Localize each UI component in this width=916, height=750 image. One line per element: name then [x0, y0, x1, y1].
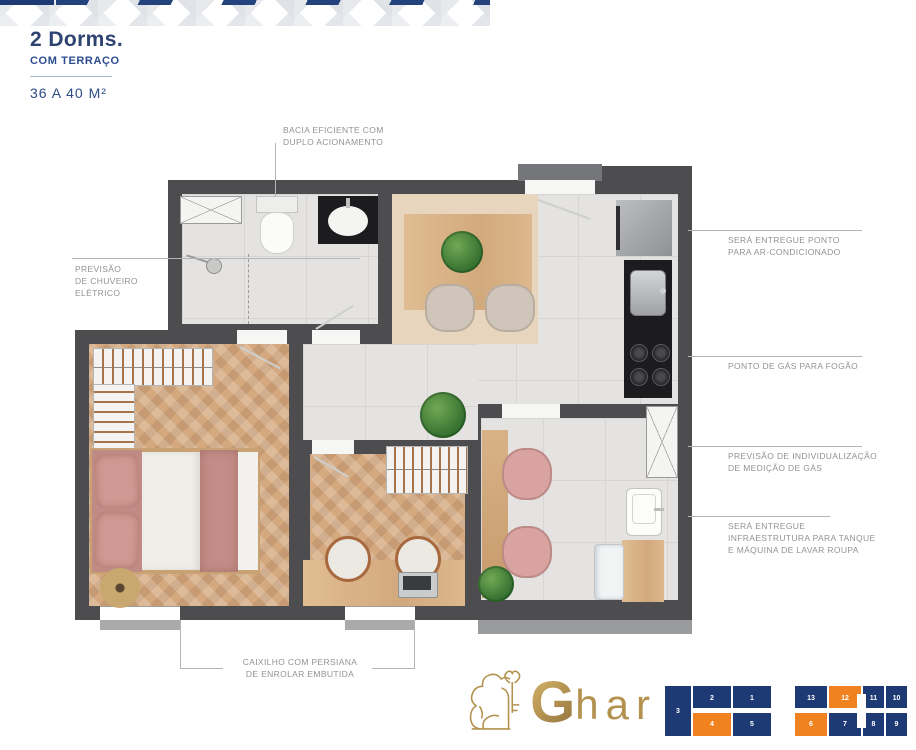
- bed-mattress-edge: [238, 452, 258, 570]
- leader-line-ar: [688, 230, 862, 231]
- header: 2 Dorms. COM TERRAÇO 36 A 40 M²: [30, 28, 250, 101]
- title-divider: [30, 76, 112, 77]
- page-title: 2 Dorms.: [30, 28, 250, 52]
- desk-chair-1: [325, 536, 371, 582]
- shower-divider-line: [248, 254, 249, 324]
- keyplan-unit-13: 13: [795, 686, 827, 710]
- terrace-chair-2: [502, 526, 552, 578]
- terrace-plant: [478, 566, 514, 602]
- hall-plant: [420, 392, 466, 438]
- bed-duvet: [142, 452, 200, 570]
- pouf: [100, 568, 140, 608]
- bathroom-door-gap: [312, 330, 360, 344]
- keyplan-core-notch: [857, 694, 866, 728]
- toilet-tank: [256, 196, 298, 213]
- keyplan-unit-1: 1: [733, 686, 771, 710]
- stove-burner-2: [652, 344, 670, 362]
- table-plant: [441, 231, 483, 273]
- entry-porch: [518, 164, 602, 181]
- bed-blanket: [200, 450, 238, 572]
- brand-wordmark: G har: [530, 674, 657, 732]
- annotation-caixilho: CAIXILHO COM PERSIANA DE ENROLAR EMBUTID…: [212, 656, 388, 680]
- leader-line-bacia: [275, 143, 276, 197]
- area-range: 36 A 40 M²: [30, 85, 250, 101]
- keyplan-unit-11: 11: [863, 686, 884, 710]
- laundry-tank-basin: [632, 494, 656, 524]
- fridge-handle: [616, 206, 620, 250]
- fridge: [616, 200, 672, 256]
- keyplan-unit-9: 9: [886, 712, 907, 736]
- leader-line-caixilho-left-v: [180, 620, 181, 668]
- brand-letters-har: har: [575, 682, 657, 728]
- floorplan-page: 2 Dorms. COM TERRAÇO 36 A 40 M²: [0, 0, 916, 750]
- keyplan: 3 2 1 13 12 11 10 4 5 6 7 8 9: [663, 680, 909, 742]
- stove-burner-1: [630, 344, 648, 362]
- brand-logo: G har: [452, 660, 657, 746]
- lion-key-icon: [452, 663, 526, 743]
- shower-head-icon: [206, 258, 222, 274]
- window2-sill: [345, 620, 415, 630]
- keyplan-unit-10: 10: [886, 686, 907, 710]
- leader-line-chuveiro: [72, 258, 360, 259]
- page-subtitle: COM TERRAÇO: [30, 55, 250, 67]
- decorative-navy-zigzag: [56, 0, 490, 5]
- terrace-edge-band: [478, 620, 692, 634]
- annotation-bacia: BACIA EFICIENTE COM DUPLO ACIONAMENTO: [283, 124, 384, 148]
- keyplan-unit-5: 5: [733, 712, 771, 736]
- terrace-chair-1: [502, 448, 552, 500]
- brand-letter-g: G: [530, 674, 575, 732]
- stove-burner-3: [630, 368, 648, 386]
- dining-chair-2: [485, 284, 535, 332]
- laptop-screen: [403, 576, 431, 590]
- annotation-chuveiro: PREVISÃO DE CHUVEIRO ELÉTRICO: [75, 263, 138, 299]
- bathroom-faucet: [346, 198, 350, 208]
- laundry-counter: [622, 540, 664, 602]
- keyplan-unit-4: 4: [693, 712, 731, 736]
- keyplan-unit-2: 2: [693, 686, 731, 710]
- terrace-door-gap: [502, 404, 560, 418]
- keyplan-unit-3: 3: [665, 686, 691, 736]
- bathroom-sink-bowl: [328, 206, 368, 236]
- bedroom1-door-gap: [237, 330, 287, 344]
- stove-burner-4: [652, 368, 670, 386]
- washer-space: [594, 544, 624, 600]
- closet-rail-horizontal: [93, 348, 213, 386]
- bedroom2-door-gap: [312, 440, 354, 454]
- annotation-medicao-gas: PREVISÃO DE INDIVIDUALIZAÇÃO DE MEDIÇÃO …: [728, 450, 877, 474]
- closet2-rail: [386, 446, 468, 494]
- gas-meter-shaft-hatch: [646, 406, 678, 478]
- tank-faucet: [654, 508, 664, 511]
- kitchen-faucet: [660, 288, 666, 294]
- keyplan-unit-8: 8: [863, 712, 884, 736]
- window1-sill: [100, 620, 180, 630]
- leader-line-tanque: [688, 516, 830, 517]
- toilet-bowl: [260, 212, 294, 254]
- annotation-gas-fogao: PONTO DE GÁS PARA FOGÃO: [728, 360, 858, 372]
- keyplan-core-gap: [771, 680, 795, 742]
- dining-chair-1: [425, 284, 475, 332]
- keyplan-corridor-left: [691, 708, 771, 713]
- leader-line-caixilho-right-v: [414, 620, 415, 668]
- bed-pillow-1: [94, 453, 141, 509]
- wall-top-right: [600, 166, 692, 194]
- bathroom-shaft-hatch: [180, 196, 242, 224]
- annotation-ar-condicionado: SERÁ ENTREGUE PONTO PARA AR-CONDICIONADO: [728, 234, 841, 258]
- entry-door-gap: [525, 180, 595, 194]
- decorative-navy-bar: [0, 0, 54, 5]
- leader-line-medicao-gas: [688, 446, 862, 447]
- annotation-tanque: SERÁ ENTREGUE INFRAESTRUTURA PARA TANQUE…: [728, 520, 875, 556]
- keyplan-corridor-right: [795, 708, 909, 713]
- keyplan-unit-6: 6: [795, 712, 827, 736]
- bed-pillow-2: [94, 511, 140, 569]
- leader-line-gas-fogao: [688, 356, 862, 357]
